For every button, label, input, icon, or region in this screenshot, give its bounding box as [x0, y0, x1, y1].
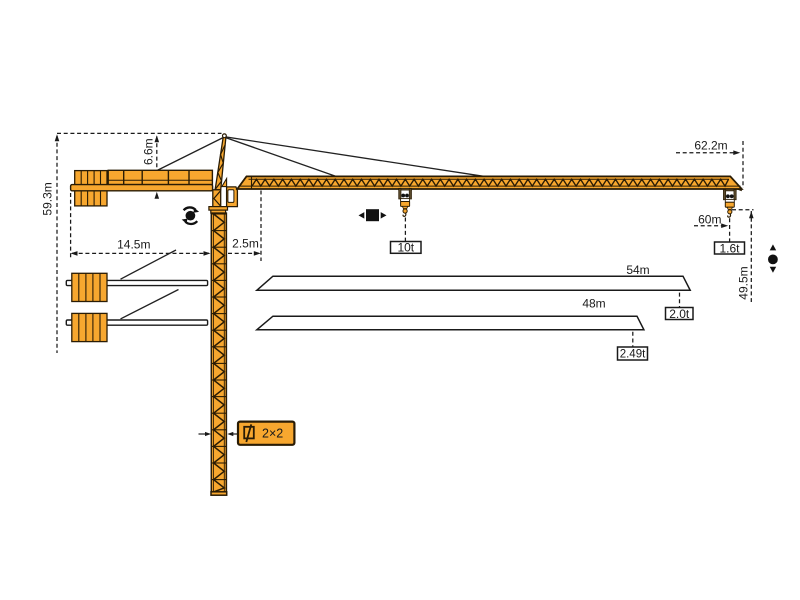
svg-text:49.5m: 49.5m	[737, 266, 751, 299]
svg-text:2.0t: 2.0t	[669, 307, 690, 321]
svg-text:62.2m: 62.2m	[694, 138, 727, 152]
svg-text:60m: 60m	[698, 212, 721, 226]
svg-text:54m: 54m	[626, 263, 649, 277]
svg-text:10t: 10t	[397, 241, 414, 255]
svg-text:2.5m: 2.5m	[232, 237, 259, 251]
svg-text:14.5m: 14.5m	[117, 238, 150, 252]
svg-text:1.6t: 1.6t	[719, 241, 740, 255]
svg-text:2.49t: 2.49t	[620, 349, 646, 361]
svg-text:6.6m: 6.6m	[141, 138, 155, 165]
svg-text:59.3m: 59.3m	[40, 182, 54, 215]
svg-text:48m: 48m	[582, 297, 605, 311]
svg-text:2×2: 2×2	[262, 427, 283, 441]
